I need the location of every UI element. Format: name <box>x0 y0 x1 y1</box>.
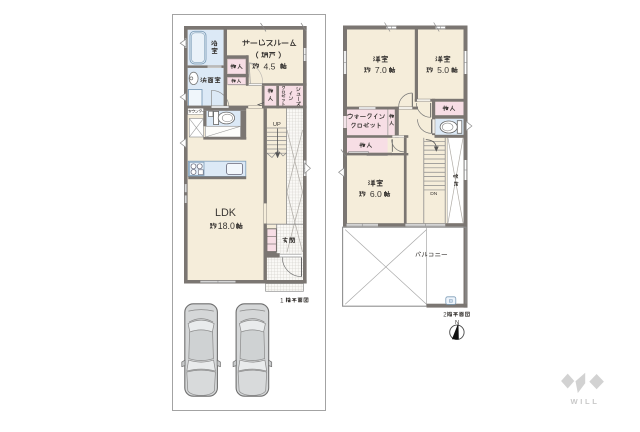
svg-text:DN: DN <box>430 191 438 197</box>
svg-text:4.5: 4.5 <box>264 61 276 71</box>
svg-text:5.0: 5.0 <box>437 65 449 75</box>
svg-text:WILL: WILL <box>571 397 600 406</box>
svg-text:LDK: LDK <box>215 207 237 219</box>
svg-text:18.0: 18.0 <box>218 221 235 231</box>
svg-text:6.0: 6.0 <box>370 189 382 199</box>
svg-text:UP: UP <box>273 122 281 128</box>
svg-text:7.0: 7.0 <box>375 65 387 75</box>
